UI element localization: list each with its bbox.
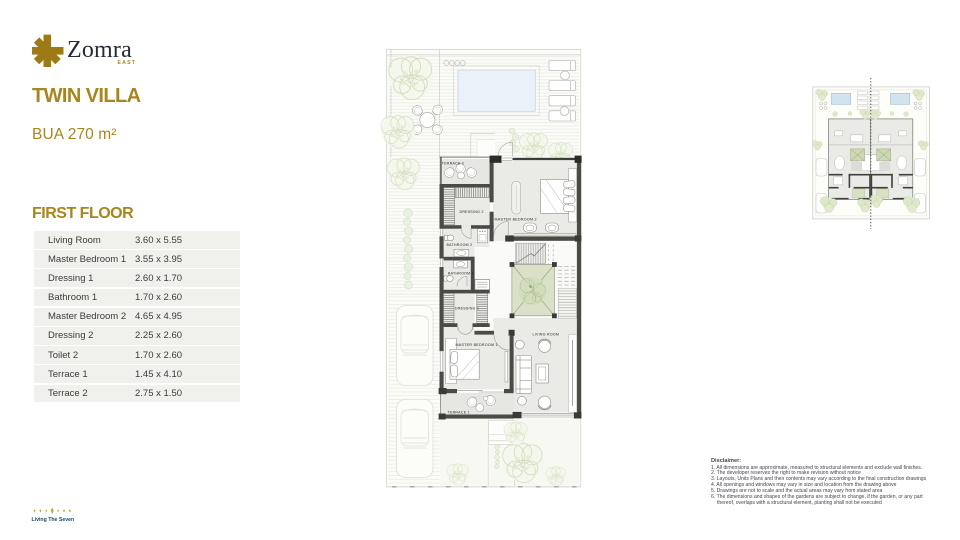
svg-text:TERRACE 1: TERRACE 1 [448, 410, 470, 414]
svg-text:DRESSING 1: DRESSING 1 [455, 306, 479, 310]
svg-text:MASTER BEDROOM 2: MASTER BEDROOM 2 [495, 218, 537, 222]
svg-text:MASTER BEDROOM 1: MASTER BEDROOM 1 [456, 343, 498, 347]
svg-text:DRESSING 2: DRESSING 2 [460, 210, 484, 214]
svg-text:TERRACE 2: TERRACE 2 [442, 162, 464, 166]
svg-text:BATHROOM 2: BATHROOM 2 [447, 243, 473, 247]
svg-text:BATHROOM 1: BATHROOM 1 [448, 272, 474, 276]
svg-text:LIVING ROOM: LIVING ROOM [533, 332, 560, 336]
svg-text:Living The Seven: Living The Seven [32, 517, 75, 523]
